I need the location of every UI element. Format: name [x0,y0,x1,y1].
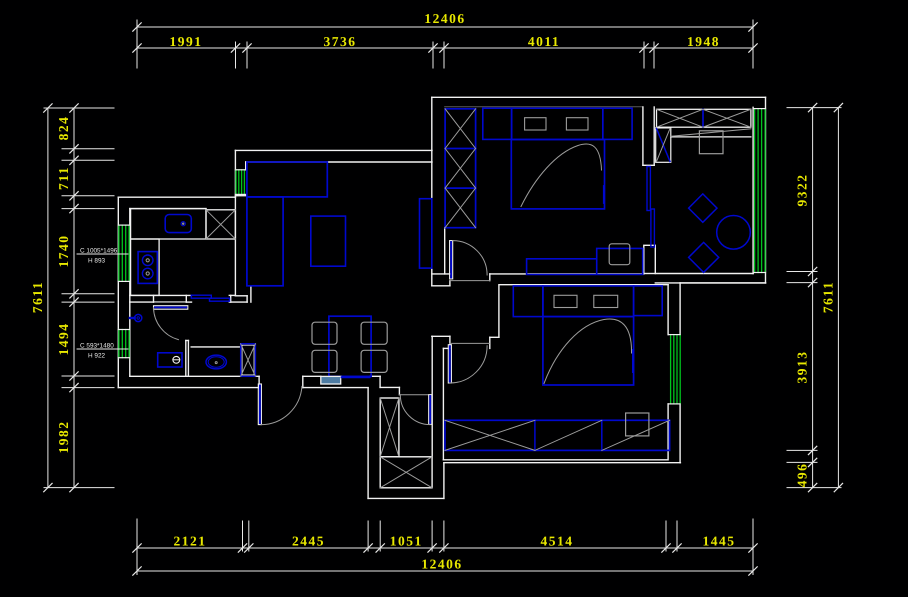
svg-text:C 1005*1496: C 1005*1496 [80,248,118,255]
svg-text:3736: 3736 [324,34,357,49]
svg-text:1051: 1051 [390,534,423,549]
svg-text:2121: 2121 [174,534,207,549]
svg-text:1740: 1740 [56,235,71,268]
svg-text:H 922: H 922 [88,353,105,360]
svg-text:1982: 1982 [56,421,71,454]
svg-text:12406: 12406 [421,557,462,572]
svg-text:496: 496 [795,463,810,488]
svg-text:12406: 12406 [424,11,465,26]
svg-text:H 893: H 893 [88,258,105,265]
svg-text:1991: 1991 [170,34,203,49]
svg-text:C 593*1480: C 593*1480 [80,343,114,350]
svg-text:711: 711 [56,166,71,190]
svg-text:4514: 4514 [541,534,574,549]
svg-text:9322: 9322 [795,174,810,207]
svg-text:1494: 1494 [56,323,71,356]
svg-text:7611: 7611 [821,281,836,313]
svg-text:824: 824 [56,116,71,141]
svg-text:1948: 1948 [687,34,720,49]
svg-text:7611: 7611 [30,281,45,313]
svg-text:3913: 3913 [795,351,810,384]
svg-text:2445: 2445 [292,534,325,549]
svg-text:4011: 4011 [528,34,560,49]
svg-text:1445: 1445 [703,534,736,549]
